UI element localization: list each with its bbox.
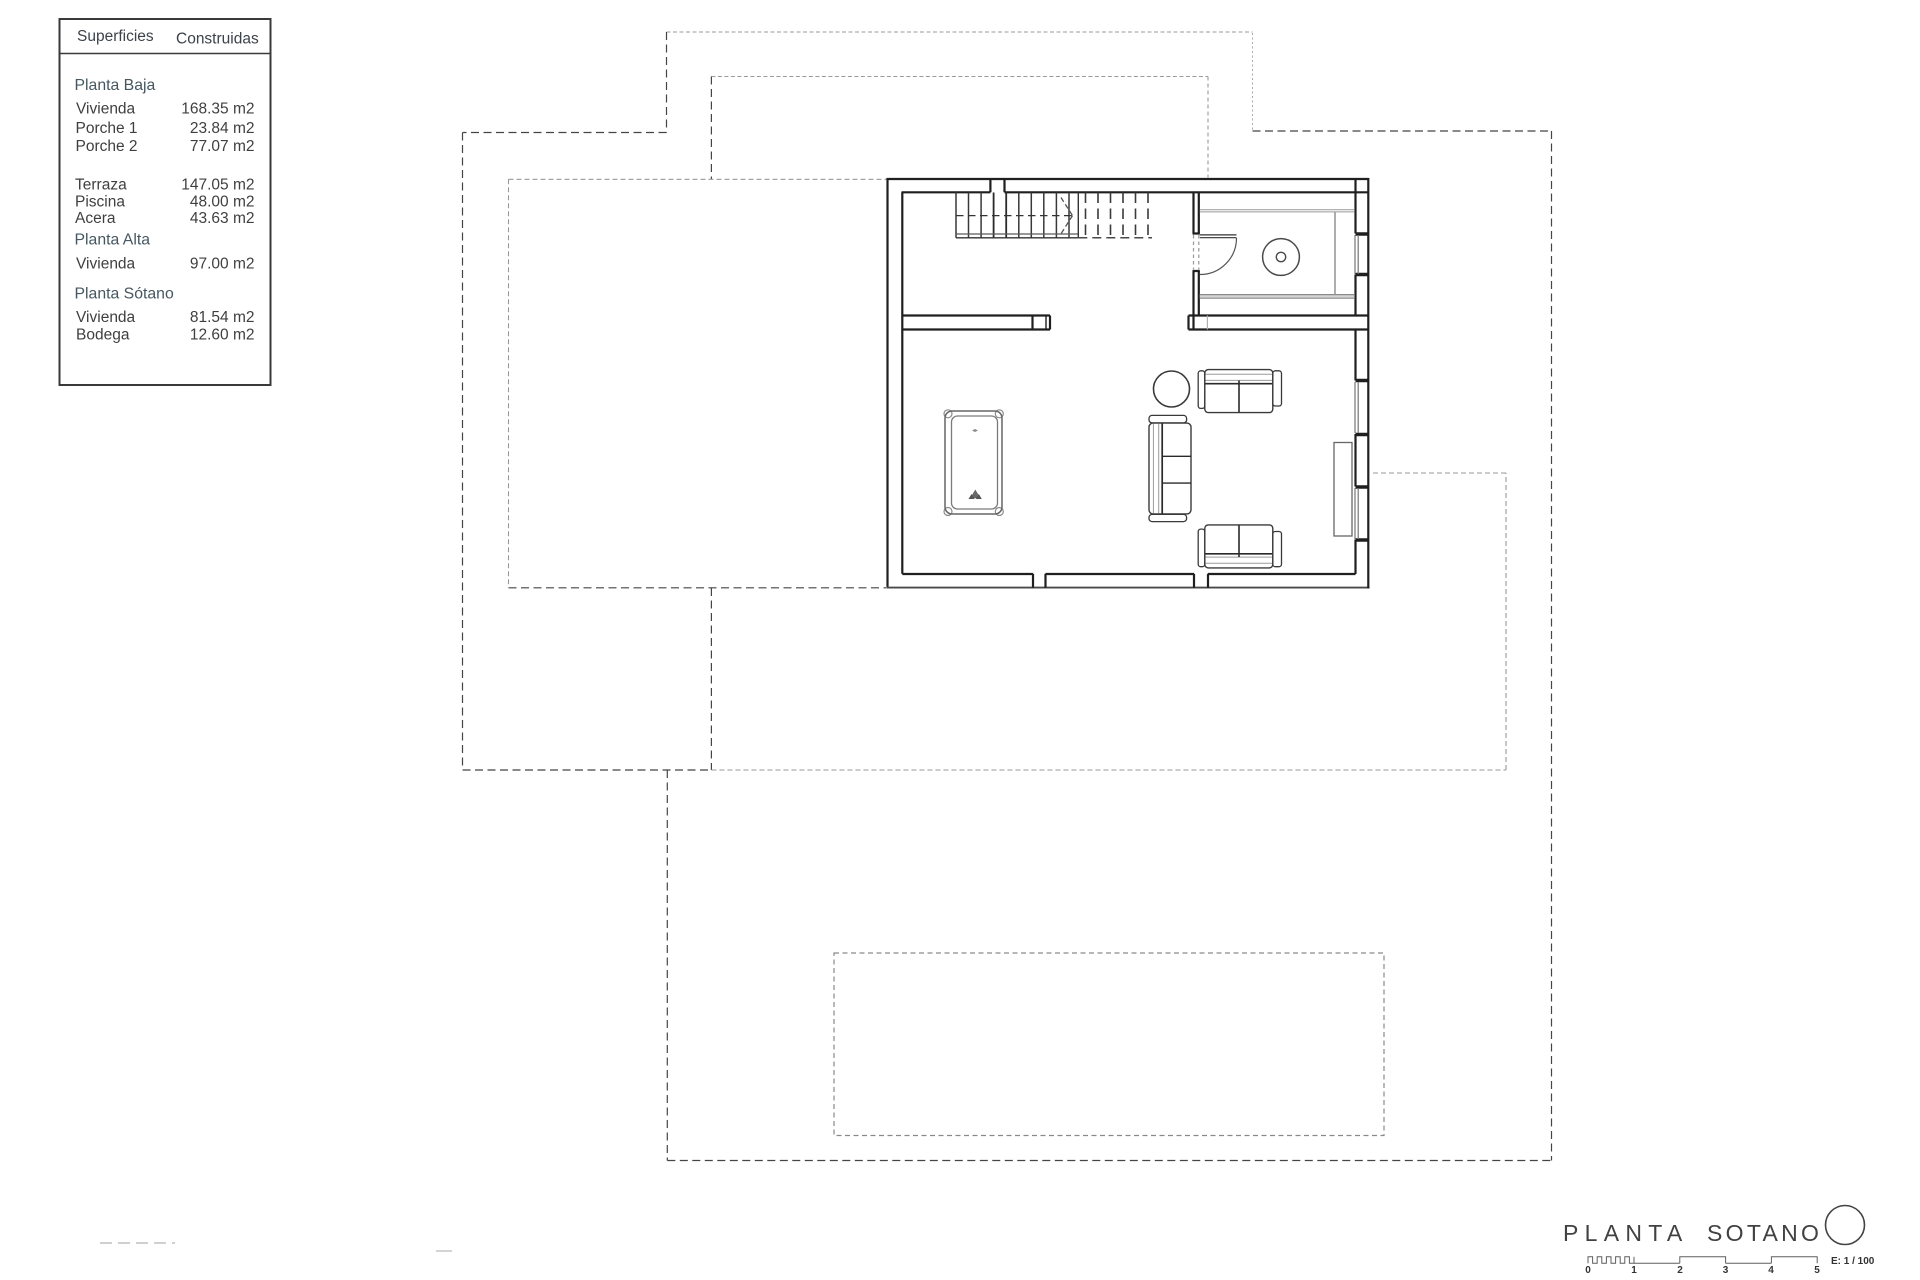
svg-text:Bodega: Bodega	[76, 327, 130, 344]
svg-text:SOTANO: SOTANO	[1707, 1220, 1822, 1246]
svg-text:Vivienda: Vivienda	[76, 101, 136, 118]
svg-text:Piscina: Piscina	[75, 194, 125, 211]
svg-text:81.54 m2: 81.54 m2	[190, 309, 255, 326]
svg-text:Superficies: Superficies	[77, 28, 154, 45]
svg-text:147.05 m2: 147.05 m2	[181, 177, 254, 194]
svg-text:77.07 m2: 77.07 m2	[190, 138, 255, 155]
svg-text:Porche 1: Porche 1	[76, 120, 138, 137]
svg-text:97.00 m2: 97.00 m2	[190, 256, 255, 273]
svg-text:Vivienda: Vivienda	[76, 256, 136, 273]
svg-text:Construidas: Construidas	[176, 31, 259, 48]
svg-text:Planta Sótano: Planta Sótano	[75, 286, 174, 303]
svg-text:Planta Baja: Planta Baja	[75, 77, 156, 94]
svg-text:23.84 m2: 23.84 m2	[190, 120, 255, 137]
svg-text:E: 1 / 100: E: 1 / 100	[1831, 1256, 1875, 1267]
svg-text:168.35 m2: 168.35 m2	[181, 101, 254, 118]
svg-text:PLANTA: PLANTA	[1563, 1220, 1689, 1246]
svg-text:48.00 m2: 48.00 m2	[190, 194, 255, 211]
svg-text:Vivienda: Vivienda	[76, 309, 136, 326]
svg-text:4: 4	[1768, 1265, 1774, 1276]
svg-text:1: 1	[1631, 1265, 1637, 1276]
svg-text:Acera: Acera	[75, 210, 116, 227]
svg-text:12.60 m2: 12.60 m2	[190, 327, 255, 344]
svg-text:43.63 m2: 43.63 m2	[190, 210, 255, 227]
svg-text:Terraza: Terraza	[75, 177, 127, 194]
svg-text:5: 5	[1814, 1265, 1820, 1276]
svg-text:2: 2	[1677, 1265, 1683, 1276]
svg-text:Porche 2: Porche 2	[76, 138, 138, 155]
svg-text:3: 3	[1723, 1265, 1729, 1276]
svg-text:Planta Alta: Planta Alta	[75, 232, 151, 249]
svg-text:0: 0	[1585, 1265, 1591, 1276]
